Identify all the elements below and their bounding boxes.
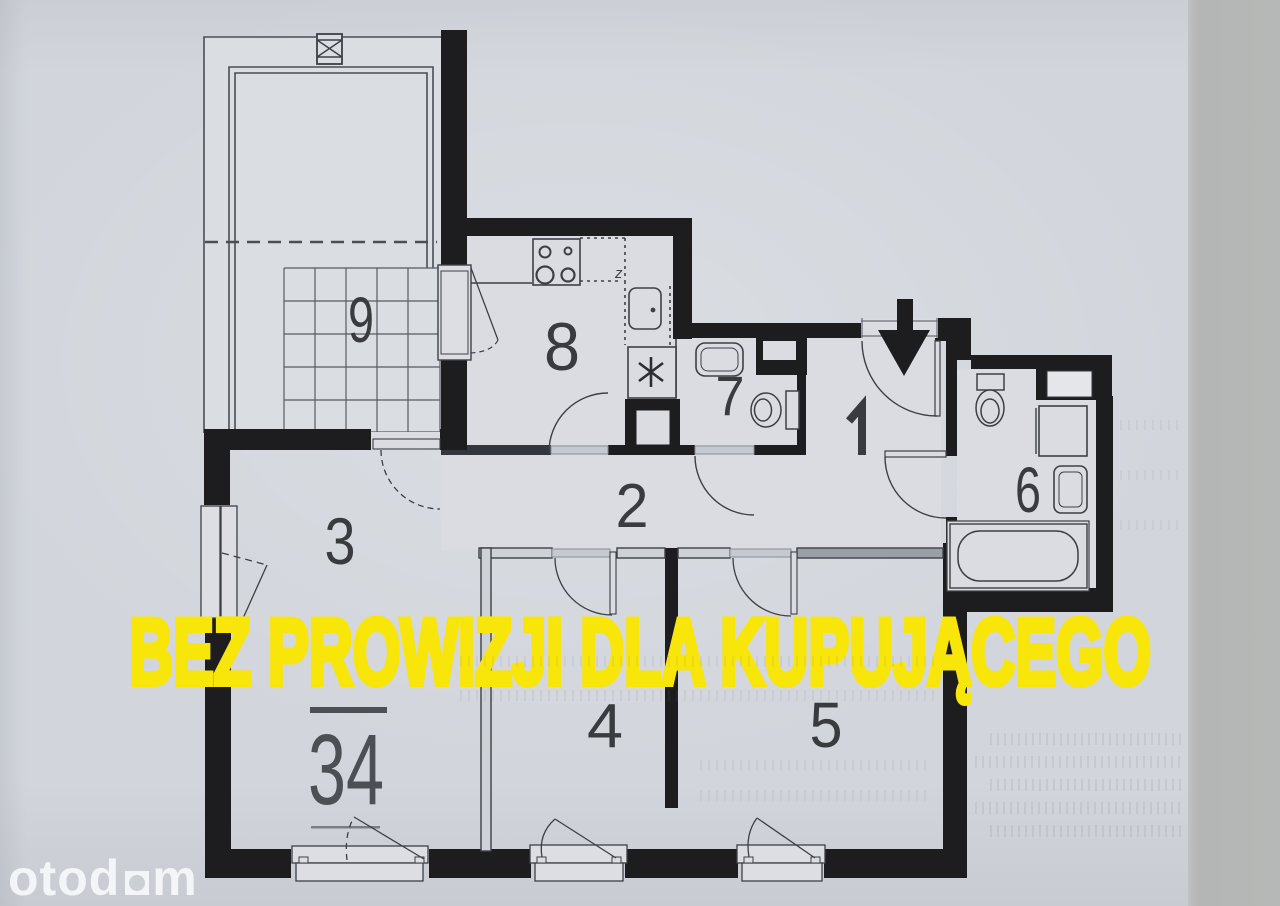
svg-text:2: 2	[616, 472, 649, 541]
svg-text:7: 7	[716, 364, 745, 427]
svg-text:8: 8	[544, 309, 580, 385]
svg-text:34: 34	[308, 714, 384, 826]
svg-text:z: z	[614, 265, 623, 282]
svg-text:3: 3	[325, 504, 356, 578]
svg-text:BEZ PROWIZJI DLA KUPUJĄCEGO: BEZ PROWIZJI DLA KUPUJĄCEGO	[129, 599, 1151, 704]
svg-text:6: 6	[1015, 454, 1041, 526]
svg-text:9: 9	[348, 284, 374, 356]
